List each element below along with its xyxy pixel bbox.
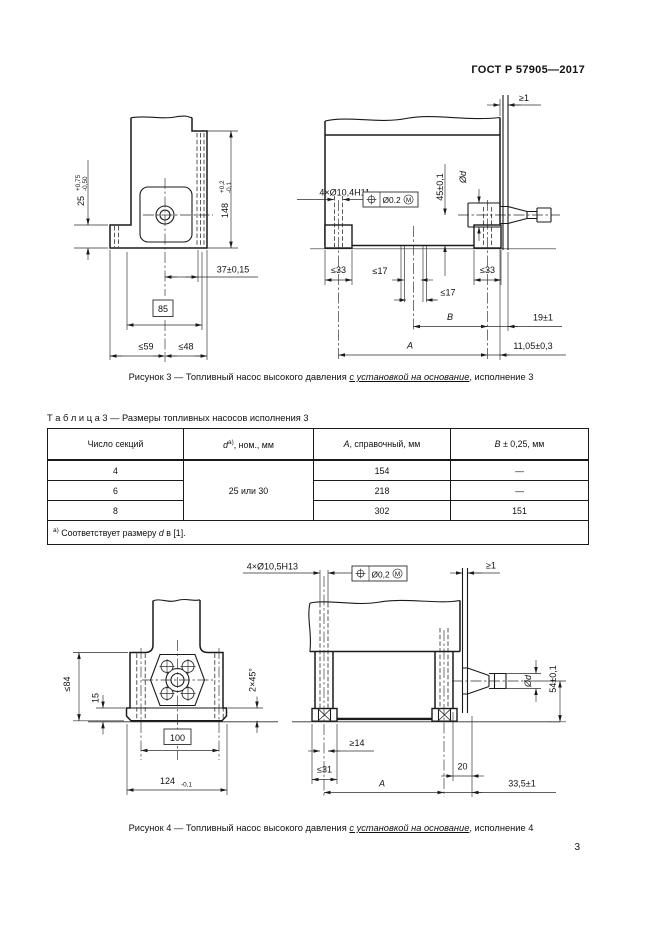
dim-le33-left: ≤33 xyxy=(331,265,346,275)
tolerance-value: Ø0,2 xyxy=(372,569,390,579)
dim-le17-b: ≤17 xyxy=(441,288,456,298)
dim-A: A xyxy=(406,341,413,351)
dim-54: 54±0,1 xyxy=(548,665,558,692)
dim-ge1: ≥1 xyxy=(486,561,496,571)
dim-le31: ≤31 xyxy=(317,765,332,775)
dim-148-tol-up: +0,2 xyxy=(219,180,226,193)
fig3-right-view: 4×Ø10,4H11 Ø0.2 M ≥1 Ød xyxy=(297,93,566,360)
dimension-table: Число секций dа), ном., мм А, справочный… xyxy=(47,428,589,545)
figure4-caption: Рисунок 4 — Топливный насос высокого дав… xyxy=(16,823,646,833)
dim-148-tol-dn: -0,1 xyxy=(226,182,233,193)
dim-124: 124 xyxy=(160,776,175,786)
hole-callout-label: 4×Ø10,4H11 xyxy=(319,188,370,198)
dim-ge1: ≥1 xyxy=(519,93,529,103)
page-number: 3 xyxy=(574,842,580,853)
col-B: В ± 0,25, мм xyxy=(451,429,589,461)
table-row: 4 25 или 30 154 — xyxy=(48,460,589,481)
dim-19: 19±1 xyxy=(533,313,553,323)
fig4-left-view: ≤84 15 100 124 -0,1 2×45° xyxy=(62,599,278,795)
standard-number: ГОСТ Р 57905—2017 xyxy=(471,64,585,76)
dim-25-tol-dn: -0,50 xyxy=(82,176,89,191)
hole-callout-label: 4×Ø10,5H13 xyxy=(247,562,298,572)
dim-15: 15 xyxy=(91,693,101,703)
svg-text:M: M xyxy=(406,197,411,204)
table-footnote-row: а) Соответствует размеру d в [1]. xyxy=(48,521,589,545)
table-row: 8 302 151 xyxy=(48,501,589,521)
dim-25-tol-up: +0,75 xyxy=(75,174,82,191)
figure3-caption: Рисунок 3 — Топливный насос высокого дав… xyxy=(16,372,646,382)
dim-le48: ≤48 xyxy=(179,342,194,352)
dim-1105: 11,05±0,3 xyxy=(513,341,552,351)
col-d: dа), ном., мм xyxy=(184,429,314,461)
table3-title: Т а б л и ц а 3 — Размеры топливных насо… xyxy=(47,413,309,423)
dim-B: B xyxy=(447,312,453,322)
figure4-caption-underlined: с установкой на основание xyxy=(349,823,469,833)
svg-text:M: M xyxy=(395,571,400,578)
col-A: А, справочный, мм xyxy=(314,429,451,461)
dim-le84: ≤84 xyxy=(62,677,72,692)
fig4-right-view: 4×Ø10,5H13 Ø0,2 M ≥1 xyxy=(243,561,566,798)
tolerance-value: Ø0.2 xyxy=(383,195,401,205)
figure4-drawing: ≤84 15 100 124 -0,1 2×45° xyxy=(62,561,566,798)
dim-ge14: ≥14 xyxy=(350,738,365,748)
figure3-drawing: 25 +0,75 -0,50 148 +0,2 -0,1 37±0,15 85 … xyxy=(74,93,566,362)
dim-37: 37±0,15 xyxy=(217,265,249,275)
dim-A: A xyxy=(378,779,385,789)
col-sections: Число секций xyxy=(48,429,184,461)
table-header-row: Число секций dа), ном., мм А, справочный… xyxy=(48,429,589,461)
dim-shaft-dia: Ød xyxy=(458,170,468,184)
dim-124-tol: -0,1 xyxy=(181,782,192,789)
table-row: 6 218 — xyxy=(48,481,589,501)
figure3-caption-underlined: с установкой на основание xyxy=(349,372,469,382)
dim-le59: ≤59 xyxy=(139,342,154,352)
dim-85: 85 xyxy=(158,304,168,314)
dim-chamfer: 2×45° xyxy=(248,668,258,692)
dim-148: 148 xyxy=(220,203,230,218)
dim-20: 20 xyxy=(457,762,467,772)
fig3-left-view: 25 +0,75 -0,50 148 +0,2 -0,1 37±0,15 85 … xyxy=(74,116,258,362)
dim-le17-a: ≤17 xyxy=(373,266,388,276)
dim-100: 100 xyxy=(170,733,185,743)
document-page: 25 +0,75 -0,50 148 +0,2 -0,1 37±0,15 85 … xyxy=(0,0,661,936)
dim-45: 45±0,1 xyxy=(435,173,445,200)
dim-335: 33,5±1 xyxy=(508,779,535,789)
dim-25: 25 xyxy=(76,196,86,206)
merged-d-cell: 25 или 30 xyxy=(184,460,314,521)
dim-le33-right: ≤33 xyxy=(480,265,495,275)
